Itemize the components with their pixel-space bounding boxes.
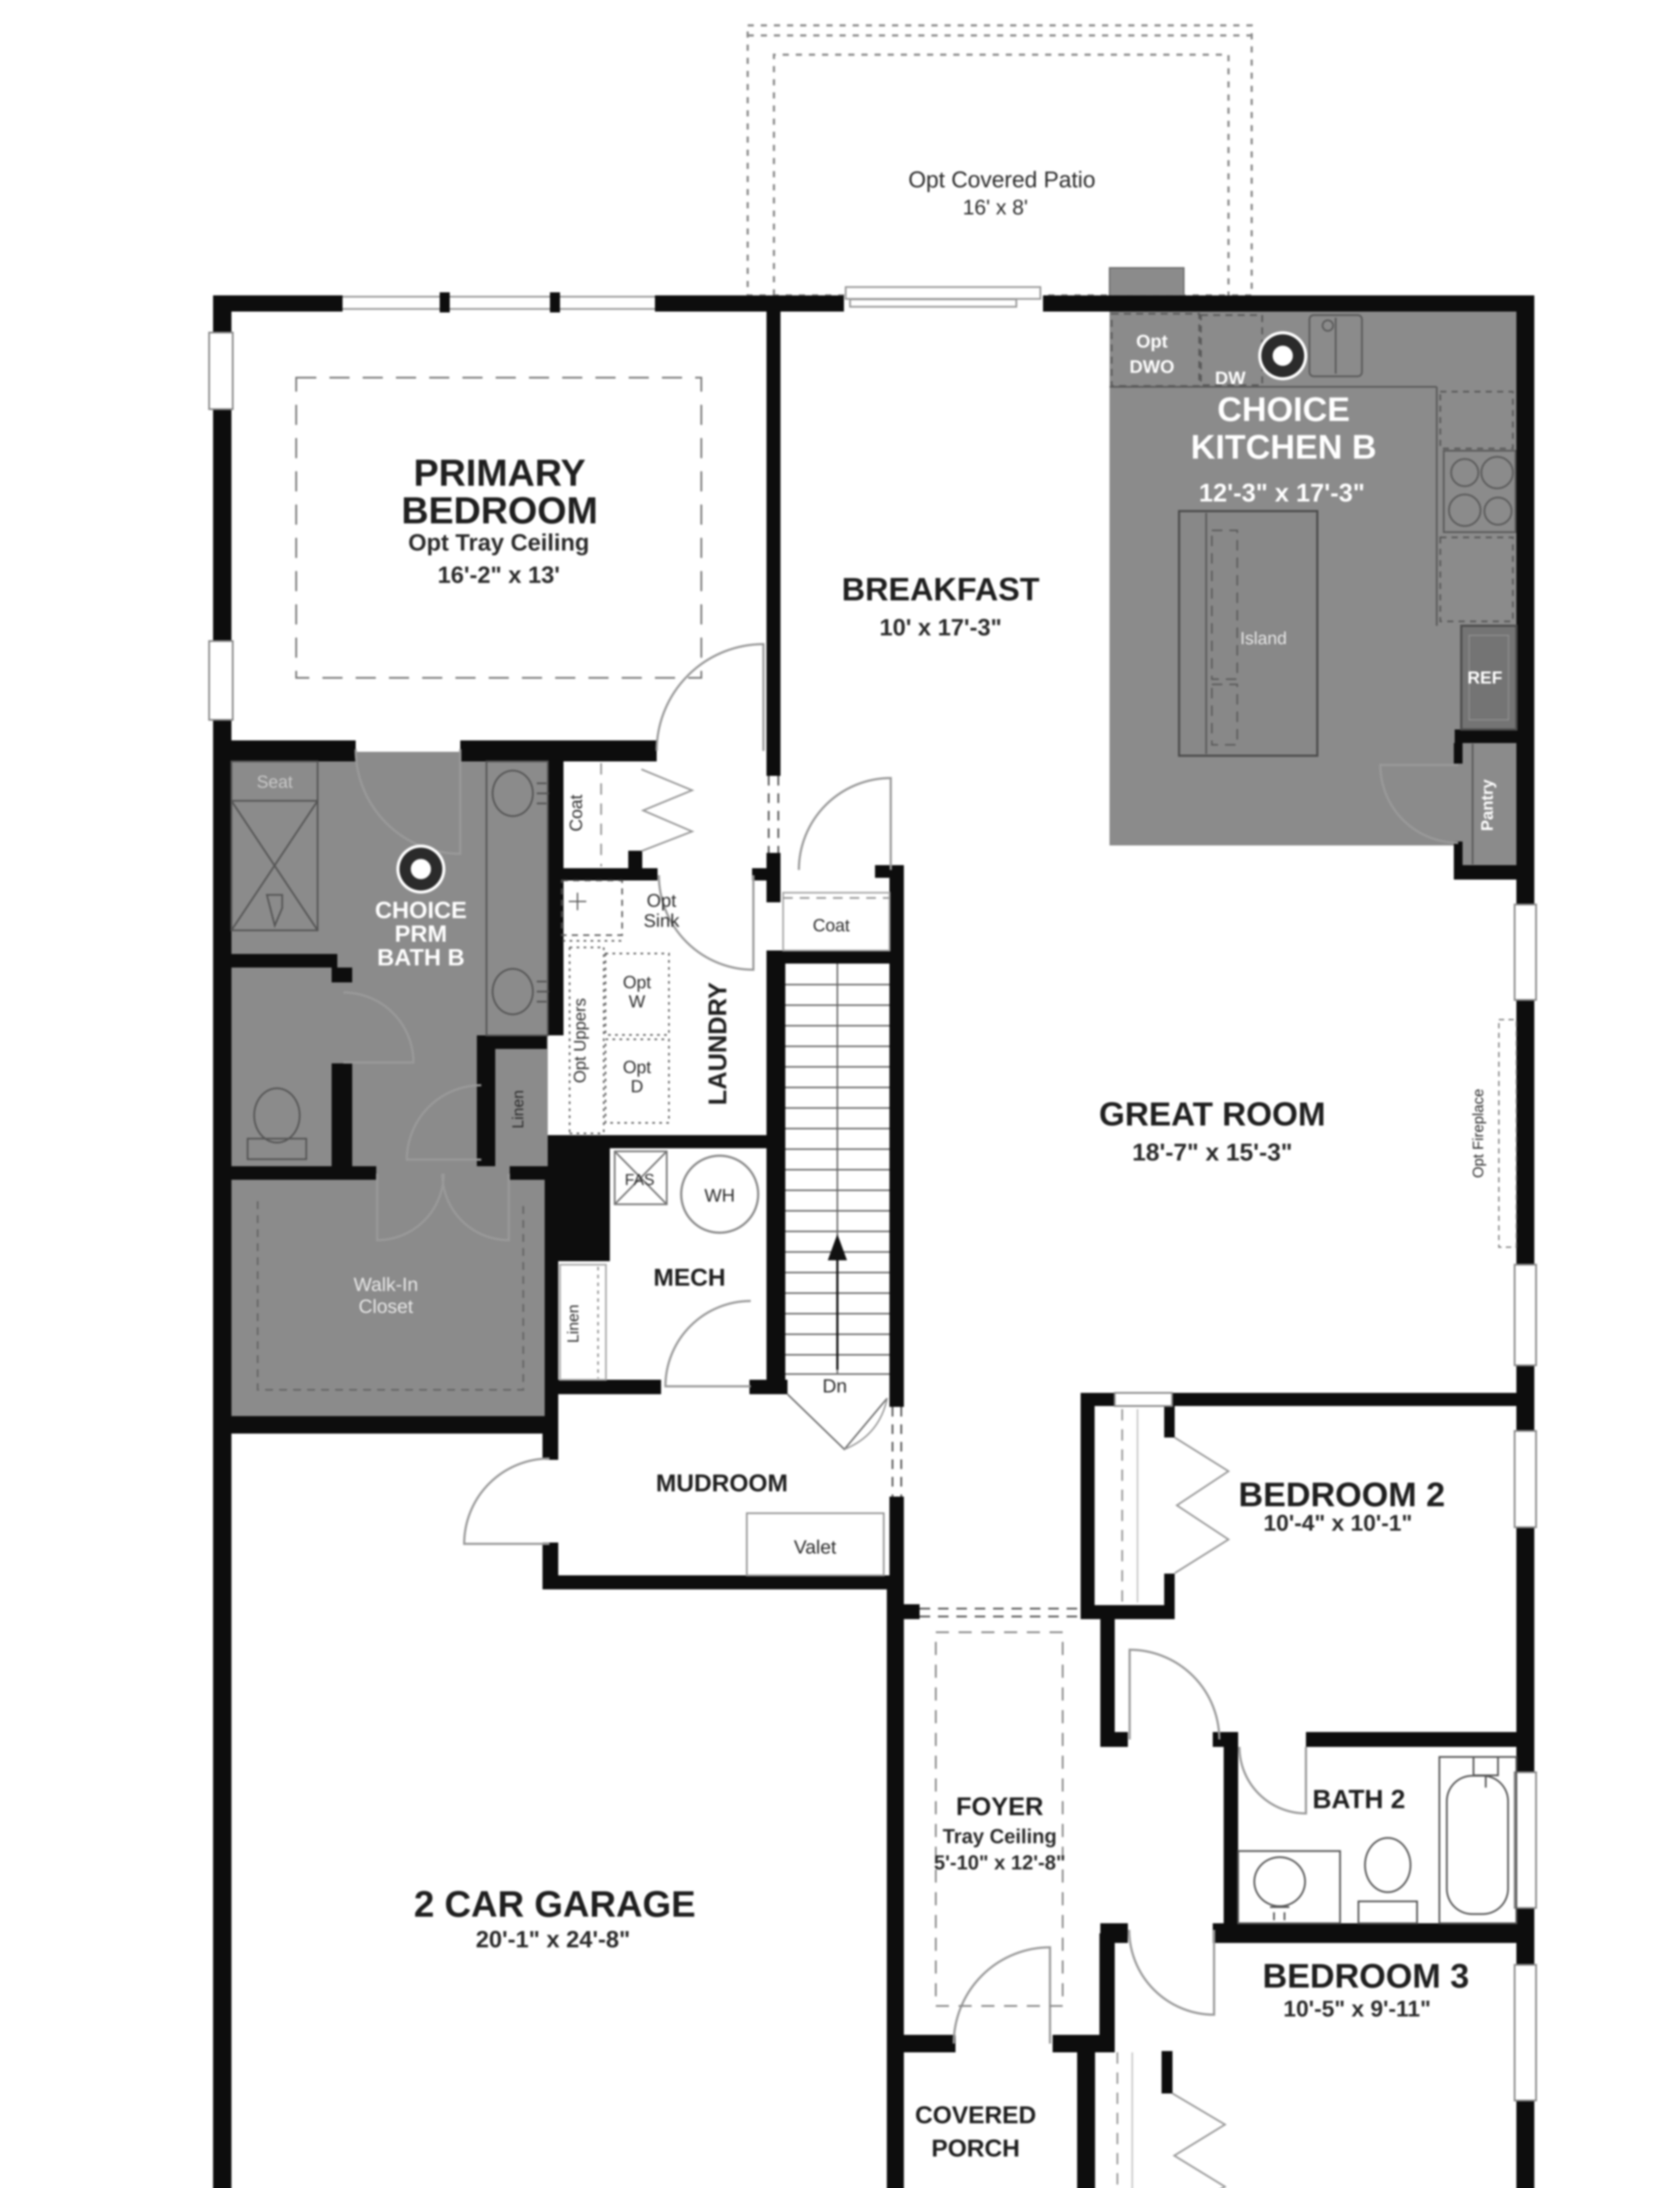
svg-text:REF: REF — [1467, 668, 1502, 687]
svg-text:BATH B: BATH B — [377, 944, 465, 971]
svg-text:D: D — [631, 1077, 644, 1096]
svg-text:PRIMARY: PRIMARY — [413, 452, 585, 494]
svg-text:Tray Ceiling: Tray Ceiling — [943, 1825, 1057, 1848]
svg-text:Walk-In: Walk-In — [353, 1274, 418, 1295]
svg-text:Linen: Linen — [509, 1090, 527, 1129]
svg-text:Dn: Dn — [822, 1375, 847, 1397]
svg-text:Coat: Coat — [813, 916, 850, 935]
svg-text:MECH: MECH — [654, 1263, 726, 1291]
svg-text:PORCH: PORCH — [931, 2134, 1020, 2162]
svg-text:WH: WH — [704, 1185, 735, 1206]
svg-text:CHOICE: CHOICE — [375, 897, 467, 923]
svg-text:20'-1" x 24'-8": 20'-1" x 24'-8" — [476, 1926, 630, 1953]
svg-text:LAUNDRY: LAUNDRY — [703, 982, 732, 1105]
svg-text:BREAKFAST: BREAKFAST — [842, 571, 1039, 607]
svg-text:2 CAR GARAGE: 2 CAR GARAGE — [414, 1883, 696, 1925]
svg-text:10'-4" x 10'-1": 10'-4" x 10'-1" — [1263, 1511, 1412, 1536]
svg-text:Linen: Linen — [564, 1304, 582, 1343]
svg-text:Opt Covered Patio: Opt Covered Patio — [908, 167, 1095, 193]
svg-text:10'-5" x 9'-11": 10'-5" x 9'-11" — [1283, 1996, 1431, 2022]
svg-text:BEDROOM: BEDROOM — [401, 490, 598, 532]
svg-text:Opt Uppers: Opt Uppers — [571, 998, 589, 1083]
svg-text:10' x 17'-3": 10' x 17'-3" — [879, 614, 1001, 641]
svg-text:Closet: Closet — [359, 1296, 413, 1317]
svg-text:Valet: Valet — [794, 1536, 836, 1558]
svg-text:COVERED: COVERED — [915, 2101, 1036, 2128]
svg-text:Opt: Opt — [1136, 331, 1168, 351]
svg-text:12'-3" x 17'-3": 12'-3" x 17'-3" — [1199, 479, 1365, 507]
svg-text:DWO: DWO — [1130, 356, 1175, 377]
svg-text:Opt: Opt — [623, 1058, 651, 1077]
svg-text:BEDROOM 2: BEDROOM 2 — [1239, 1475, 1445, 1514]
svg-text:Island: Island — [1240, 629, 1287, 648]
svg-text:Opt Tray Ceiling: Opt Tray Ceiling — [408, 529, 589, 556]
svg-text:W: W — [629, 992, 645, 1011]
svg-text:Coat: Coat — [567, 795, 586, 832]
svg-text:Opt Fireplace: Opt Fireplace — [1470, 1089, 1487, 1178]
svg-text:18'-7" x 15'-3": 18'-7" x 15'-3" — [1132, 1138, 1292, 1166]
svg-text:FAS: FAS — [625, 1171, 654, 1189]
svg-text:Pantry: Pantry — [1478, 779, 1497, 831]
svg-text:16' x 8': 16' x 8' — [962, 196, 1028, 219]
svg-text:BEDROOM 3: BEDROOM 3 — [1263, 1957, 1469, 1995]
svg-text:PRM: PRM — [395, 921, 447, 947]
svg-text:Opt: Opt — [623, 973, 651, 992]
svg-text:MUDROOM: MUDROOM — [656, 1469, 788, 1497]
svg-text:Sink: Sink — [644, 910, 680, 931]
svg-text:KITCHEN B: KITCHEN B — [1191, 428, 1377, 466]
svg-text:CHOICE: CHOICE — [1217, 390, 1350, 428]
svg-text:Seat: Seat — [257, 772, 293, 792]
svg-text:BATH 2: BATH 2 — [1312, 1785, 1405, 1814]
svg-text:DW: DW — [1215, 368, 1246, 388]
svg-text:16'-2" x 13': 16'-2" x 13' — [437, 562, 560, 588]
svg-text:FOYER: FOYER — [956, 1792, 1043, 1821]
svg-text:5'-10" x 12'-8": 5'-10" x 12'-8" — [934, 1851, 1066, 1874]
svg-text:Opt: Opt — [647, 890, 676, 911]
svg-text:GREAT ROOM: GREAT ROOM — [1099, 1096, 1326, 1133]
